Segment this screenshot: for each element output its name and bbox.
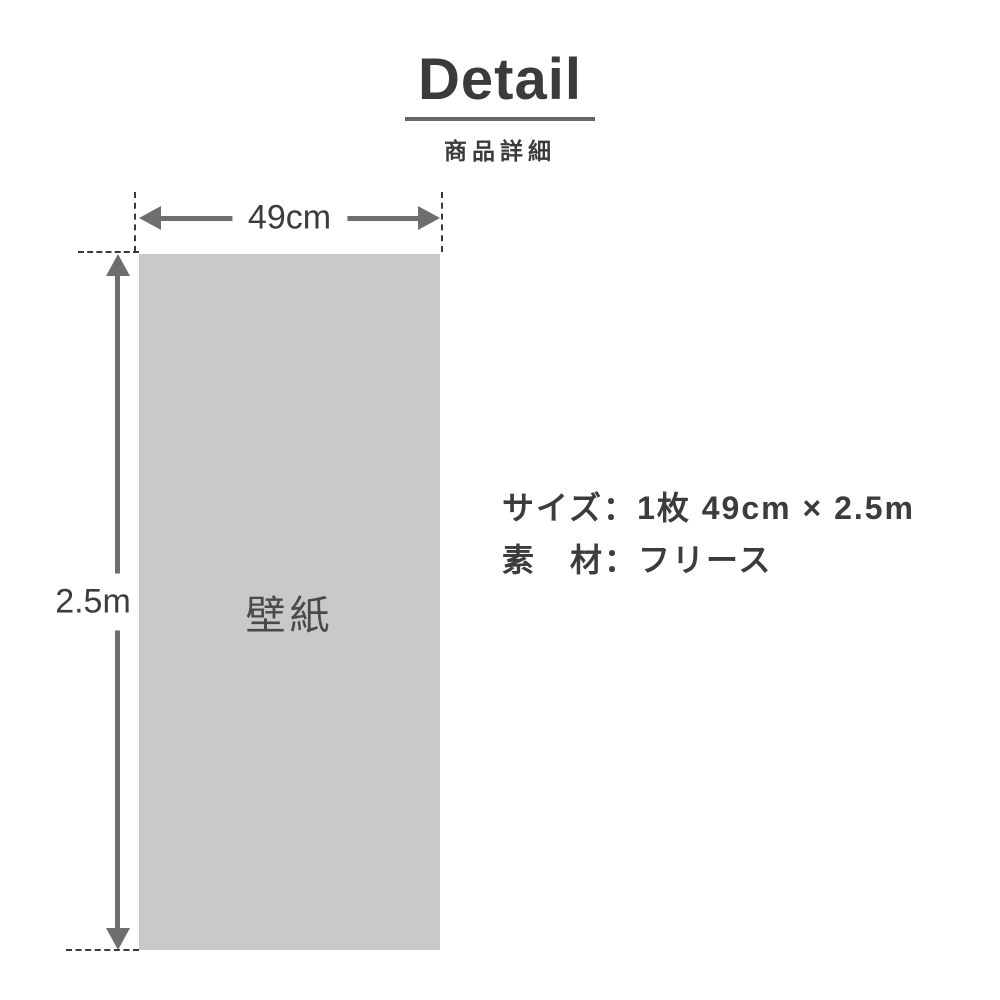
spec-row-size: サイズ：1枚 49cm × 2.5m bbox=[502, 487, 915, 529]
spec-size-value: 1枚 49cm × 2.5m bbox=[637, 490, 915, 526]
page-title: Detail bbox=[0, 50, 1000, 110]
guide-dash-horizontal-bottom bbox=[66, 949, 139, 951]
spec-material-label: 素 材 bbox=[502, 542, 604, 578]
guide-dash-horizontal-top bbox=[78, 251, 139, 253]
guide-dash-vertical-left bbox=[134, 192, 136, 252]
spec-row-material: 素 材：フリース bbox=[502, 539, 915, 581]
width-dimension: 49cm bbox=[139, 205, 440, 231]
wallpaper-panel: 壁紙 bbox=[139, 254, 440, 950]
width-arrow-left-head-icon bbox=[139, 206, 161, 230]
page-subtitle: 商品詳細 bbox=[0, 132, 1000, 166]
spec-size-label: サイズ bbox=[502, 490, 603, 526]
height-arrow-top-head-icon bbox=[106, 254, 130, 276]
width-arrow-right-head-icon bbox=[418, 206, 440, 230]
height-dimension-label: 2.5m bbox=[49, 574, 137, 631]
height-arrow-bottom-head-icon bbox=[106, 928, 130, 950]
product-detail-figure: Detail 商品詳細 壁紙 49cm 2.5m サイズ：1枚 49cm × 2… bbox=[0, 0, 1000, 1000]
wallpaper-panel-label: 壁紙 bbox=[246, 583, 334, 641]
height-dimension: 2.5m bbox=[105, 254, 131, 950]
width-dimension-label: 49cm bbox=[232, 199, 347, 238]
guide-dash-vertical-right bbox=[441, 192, 443, 252]
spec-size-colon: ： bbox=[603, 490, 637, 526]
spec-list: サイズ：1枚 49cm × 2.5m 素 材：フリース bbox=[502, 487, 915, 591]
title-underline bbox=[405, 117, 595, 121]
spec-material-colon: ： bbox=[604, 542, 638, 578]
spec-material-value: フリース bbox=[638, 542, 772, 578]
